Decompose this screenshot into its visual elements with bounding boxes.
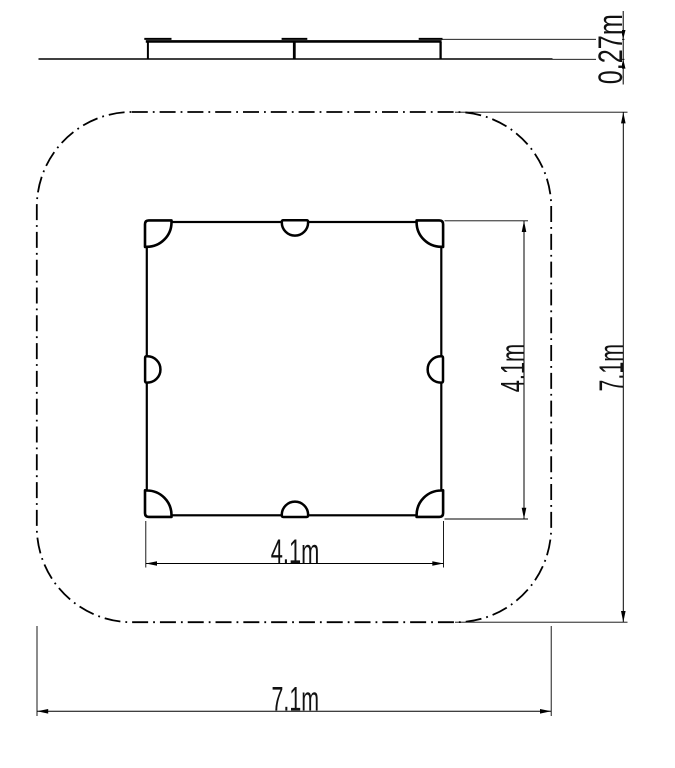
svg-text:4.1m: 4.1m (495, 344, 533, 393)
svg-text:7.1m: 7.1m (593, 344, 631, 392)
svg-text:4.1m: 4.1m (271, 533, 320, 571)
svg-text:7.1m: 7.1m (272, 681, 320, 719)
svg-text:0.27m: 0.27m (592, 14, 630, 84)
